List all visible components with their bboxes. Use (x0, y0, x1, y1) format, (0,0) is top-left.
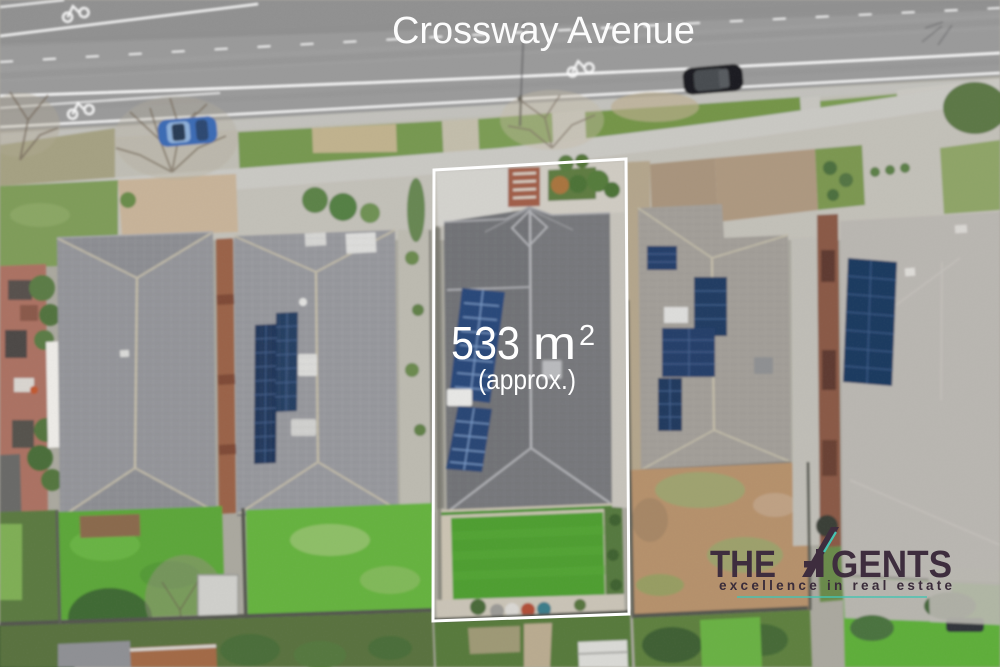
svg-text:2: 2 (579, 320, 595, 352)
svg-text:(approx.): (approx.) (478, 364, 576, 395)
svg-text:Crossway Avenue: Crossway Avenue (392, 10, 695, 52)
svg-text:excellence in real estate: excellence in real estate (719, 578, 952, 593)
svg-text:533: 533 (451, 317, 520, 369)
svg-text:m: m (533, 317, 576, 369)
